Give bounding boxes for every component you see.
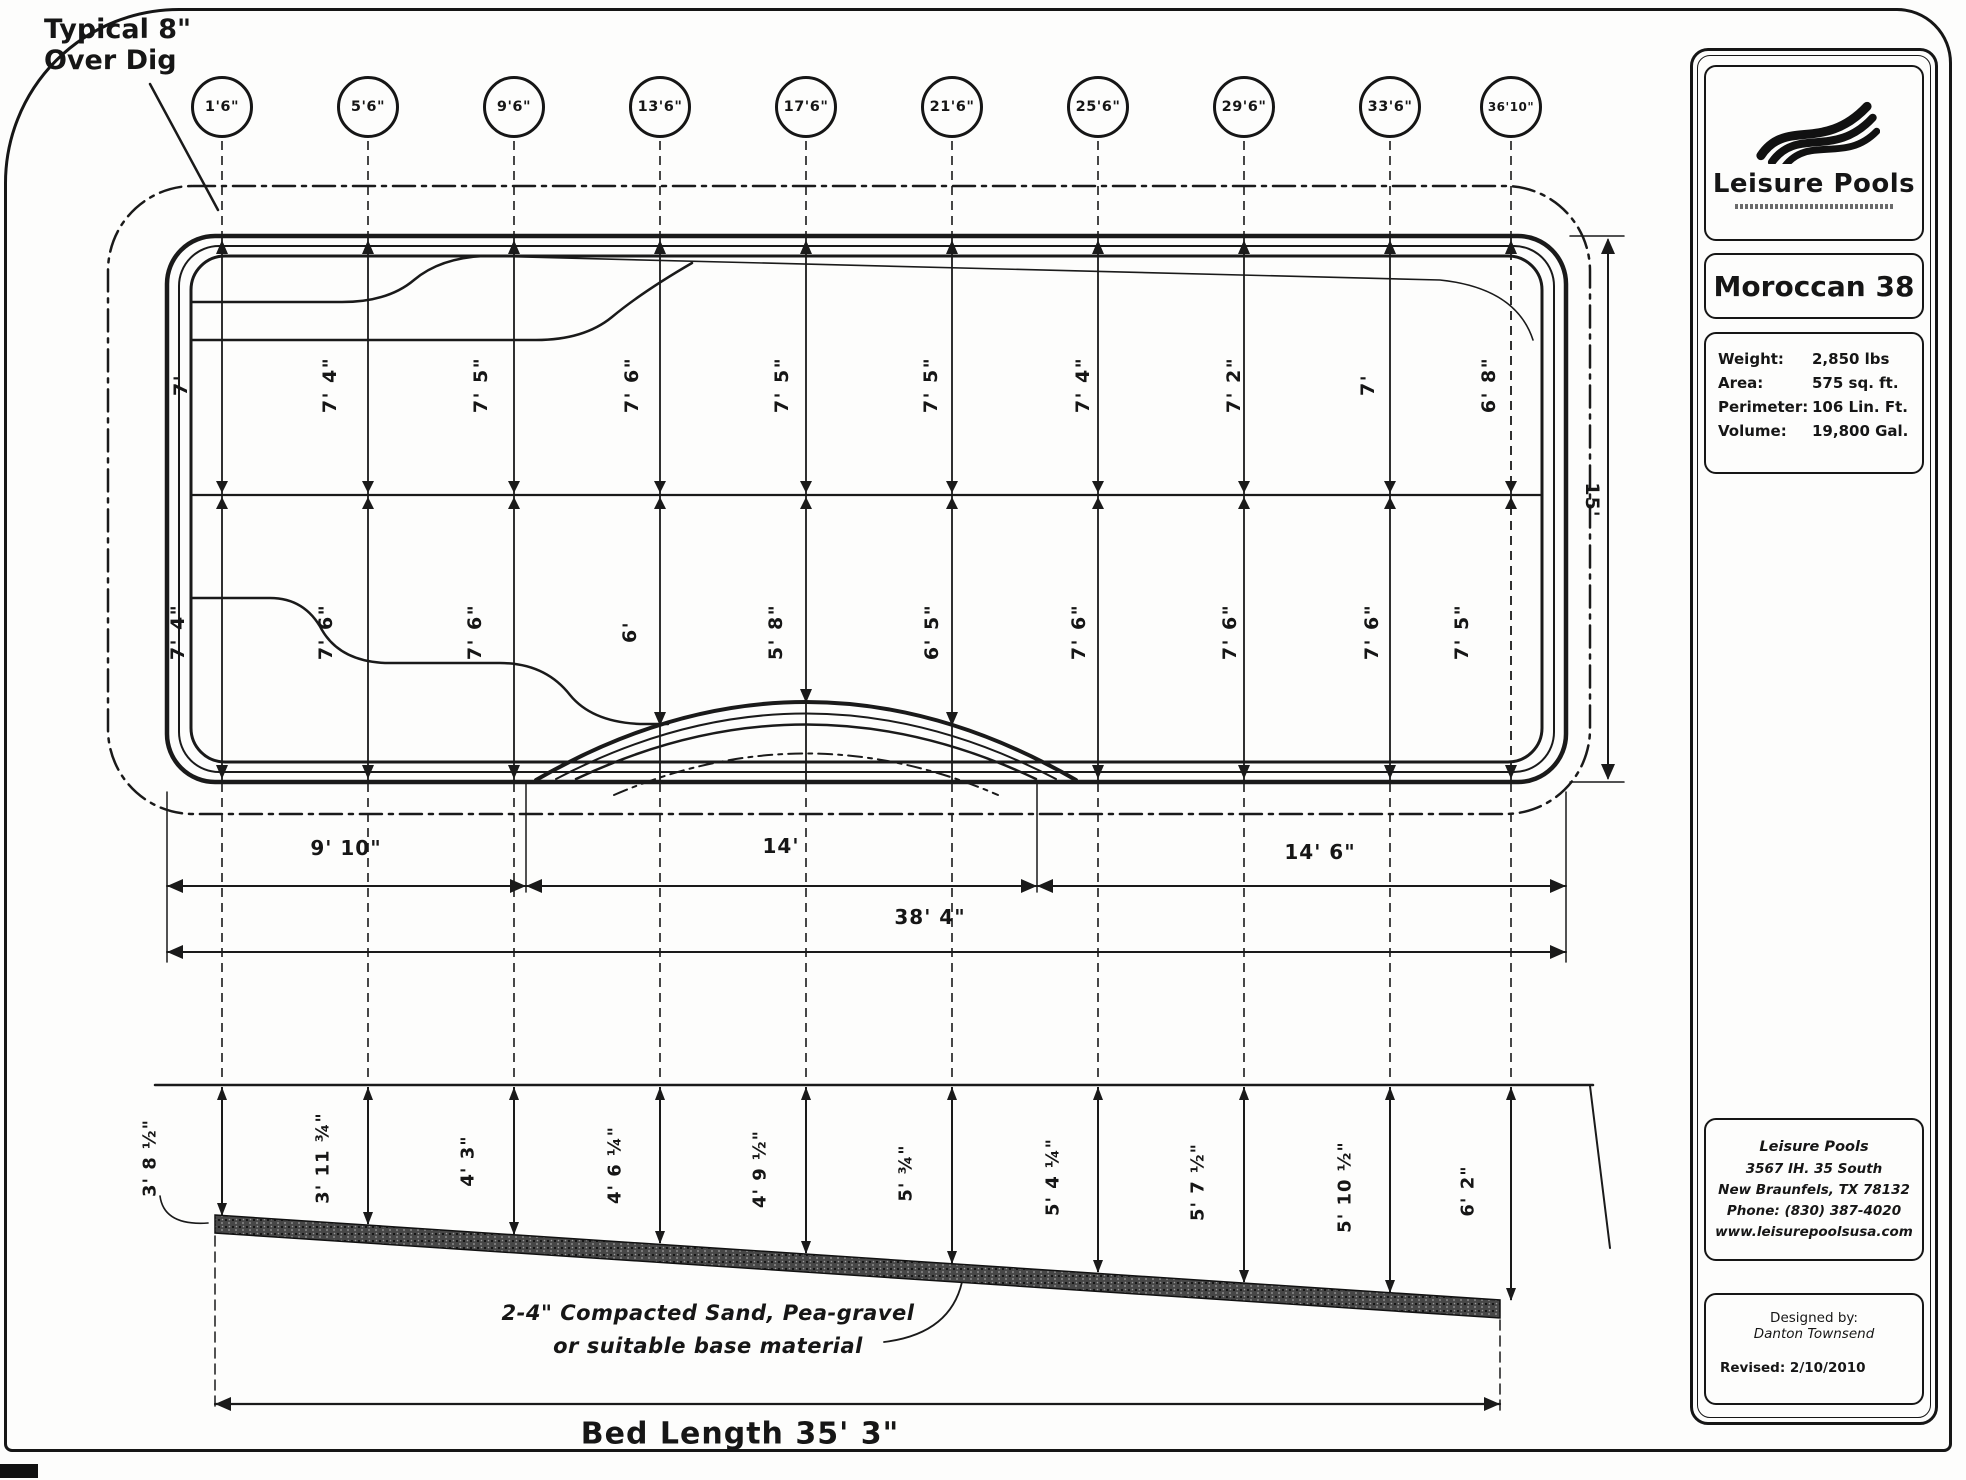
station-circle: 13'6" [629, 76, 691, 138]
arrowhead [216, 481, 228, 493]
brand-name: Leisure Pools [1713, 169, 1915, 199]
arrowhead [216, 497, 228, 509]
arrowhead [654, 497, 666, 509]
leisure-pools-wave-icon [1748, 98, 1880, 164]
sand-note-line1: 2-4" Compacted Sand, Pea-gravel [502, 1301, 915, 1325]
plan-depth-top: 7' 5" [470, 357, 492, 413]
station-circle: 1'6" [191, 76, 253, 138]
arrowhead [654, 481, 666, 493]
pool-outline-inner [191, 256, 1542, 762]
plan-depth-bottom: 7' 6" [1219, 604, 1241, 660]
profile-depth: 3' 8 ½" [140, 1119, 161, 1197]
profile-depth: 3' 11 ¾" [313, 1112, 334, 1204]
profile-depth: 5' 4 ¼" [1043, 1138, 1064, 1216]
profile-depth: 4' 3" [458, 1135, 479, 1186]
plan-depth-bottom: 7' 6" [1068, 604, 1090, 660]
over-dig-note: Typical 8" Over Dig [44, 14, 191, 76]
arrowhead [509, 1222, 519, 1235]
arrowhead [363, 1087, 373, 1100]
spec-row-perimeter: Perimeter: 106 Lin. Ft. [1718, 395, 1910, 419]
plan-depth-top: 7' [170, 374, 192, 396]
station-circle: 5'6" [337, 76, 399, 138]
address-website: www.leisurepoolsusa.com [1706, 1222, 1922, 1243]
plan-depth-top: 7' [1357, 374, 1379, 396]
designed-box: Designed by: Danton Townsend Revised: 2/… [1704, 1293, 1924, 1405]
arrowhead [800, 481, 812, 493]
address-line: 3567 IH. 35 South [1706, 1159, 1922, 1180]
pool-dig-sheet: { "annotations": { "over_dig_line1": "Ty… [0, 0, 1966, 1480]
profile-depth: 5' 7 ½" [1188, 1143, 1209, 1221]
title-block: Leisure Pools Moroccan 38 Weight: 2,850 … [1690, 48, 1938, 1425]
over-dig-outline [108, 186, 1590, 814]
arrowhead [1238, 481, 1250, 493]
plan-depth-top: 7' 5" [920, 357, 942, 413]
arrowhead [946, 481, 958, 493]
station-circle: 9'6" [483, 76, 545, 138]
address-line: Leisure Pools [1706, 1136, 1922, 1158]
station-label: 9'6" [497, 99, 531, 115]
station-label: 13'6" [638, 99, 683, 115]
arrowhead [1092, 481, 1104, 493]
revised-date: Revised: 2/10/2010 [1720, 1360, 1908, 1376]
arrowhead [362, 497, 374, 509]
designed-by-label: Designed by: [1720, 1310, 1908, 1326]
designer-name: Danton Townsend [1720, 1326, 1908, 1342]
arrowhead [1093, 1260, 1103, 1273]
sand-note-line2: or suitable base material [553, 1334, 863, 1358]
profile-depth: 4' 9 ½" [750, 1130, 771, 1208]
specs-box: Weight: 2,850 lbs Area: 575 sq. ft. Peri… [1704, 332, 1924, 474]
model-box: Moroccan 38 [1704, 253, 1924, 319]
logo-tagline [1735, 204, 1893, 209]
plan-depth-bottom: 7' 6" [315, 604, 337, 660]
arrowhead [508, 481, 520, 493]
arrowhead [1385, 1087, 1395, 1100]
station-label: 36'10" [1488, 100, 1534, 114]
station-label: 33'6" [1368, 99, 1413, 115]
station-label: 25'6" [1076, 99, 1121, 115]
pool-outline-outer [167, 236, 1566, 782]
arrowhead [1385, 1280, 1395, 1293]
plan-depth-bottom: 7' 6" [464, 604, 486, 660]
arrowhead [1505, 497, 1517, 509]
pool-waterline [484, 256, 1533, 340]
arrowhead [363, 1212, 373, 1225]
plan-depth-top: 6' 8" [1478, 357, 1500, 413]
arrowhead [1239, 1270, 1249, 1283]
plan-depth-bottom: 6' 5" [921, 604, 943, 660]
plan-depth-top: 7' 5" [771, 357, 793, 413]
first-depth-leader [160, 1196, 208, 1223]
arrowhead [1092, 497, 1104, 509]
address-box: Leisure Pools 3567 IH. 35 South New Brau… [1704, 1118, 1924, 1261]
logo-box: Leisure Pools [1704, 65, 1924, 241]
station-label: 1'6" [205, 99, 239, 115]
arrowhead [508, 497, 520, 509]
profile-depth: 6' 2" [1458, 1165, 1479, 1216]
arrowhead [1239, 1087, 1249, 1100]
dim-14-6: 14' 6" [1284, 840, 1355, 864]
address-line: New Braunfels, TX 78132 [1706, 1180, 1922, 1201]
profile-depth: 5' ¾" [896, 1144, 917, 1201]
drawing-linework [0, 0, 1966, 1480]
arrowhead [1093, 1087, 1103, 1100]
spec-row-weight: Weight: 2,850 lbs [1718, 347, 1910, 371]
arrowhead [1384, 481, 1396, 493]
bench-contour [192, 598, 668, 724]
station-circle: 17'6" [775, 76, 837, 138]
profile-depth: 5' 10 ½" [1335, 1141, 1356, 1233]
arrowhead [947, 1087, 957, 1100]
station-circle: 29'6" [1213, 76, 1275, 138]
station-label: 17'6" [784, 99, 829, 115]
dim-38-4: 38' 4" [894, 905, 965, 929]
dim-14: 14' [763, 834, 800, 858]
arrowhead [801, 1241, 811, 1254]
plan-depth-top: 7' 4" [319, 357, 341, 413]
arrowhead [1506, 1288, 1516, 1301]
station-label: 21'6" [930, 99, 975, 115]
station-circle: 33'6" [1359, 76, 1421, 138]
station-circle: 21'6" [921, 76, 983, 138]
pool-outline-mid [179, 246, 1554, 772]
over-dig-note-line1: Typical 8" [44, 14, 191, 45]
plan-depth-top: 7' 2" [1223, 357, 1245, 413]
model-name: Moroccan 38 [1714, 270, 1915, 303]
arrowhead [1505, 481, 1517, 493]
spec-row-volume: Volume: 19,800 Gal. [1718, 419, 1910, 443]
arrowhead [217, 1087, 227, 1100]
station-label: 29'6" [1222, 99, 1267, 115]
arrowhead [362, 481, 374, 493]
address-line: Phone: (830) 387-4020 [1706, 1201, 1922, 1222]
plan-depth-bottom: 7' 4" [167, 604, 189, 660]
plan-depth-top: 7' 6" [621, 357, 643, 413]
arrowhead [801, 1087, 811, 1100]
arrowhead [1506, 1087, 1516, 1100]
plan-depth-bottom: 7' 5" [1451, 604, 1473, 660]
arrowhead [509, 1087, 519, 1100]
profile-depth: 4' 6 ¼" [605, 1126, 626, 1204]
bed-length-label: Bed Length 35' 3" [581, 1417, 899, 1452]
over-dig-note-line2: Over Dig [44, 45, 191, 76]
plan-depth-top: 7' 4" [1072, 357, 1094, 413]
plan-depth-bottom: 7' 6" [1361, 604, 1383, 660]
entry-step-1 [192, 256, 484, 302]
station-circle: 25'6" [1067, 76, 1129, 138]
arrowhead [655, 1231, 665, 1244]
dim-9-10: 9' 10" [310, 836, 381, 860]
dim-15: 15' [1581, 482, 1603, 517]
station-label: 5'6" [351, 99, 385, 115]
station-circle: 36'10" [1480, 76, 1542, 138]
arrowhead [1238, 497, 1250, 509]
plan-depth-bottom: 5' 8" [765, 604, 787, 660]
arrowhead [800, 497, 812, 509]
plan-depth-bottom: 6' [619, 621, 641, 643]
arrowhead [947, 1251, 957, 1264]
arrowhead [655, 1087, 665, 1100]
spec-row-area: Area: 575 sq. ft. [1718, 371, 1910, 395]
profile-break-line [1590, 1086, 1610, 1248]
arrowhead [1384, 497, 1396, 509]
arrowhead [217, 1203, 227, 1216]
arrowhead [946, 497, 958, 509]
